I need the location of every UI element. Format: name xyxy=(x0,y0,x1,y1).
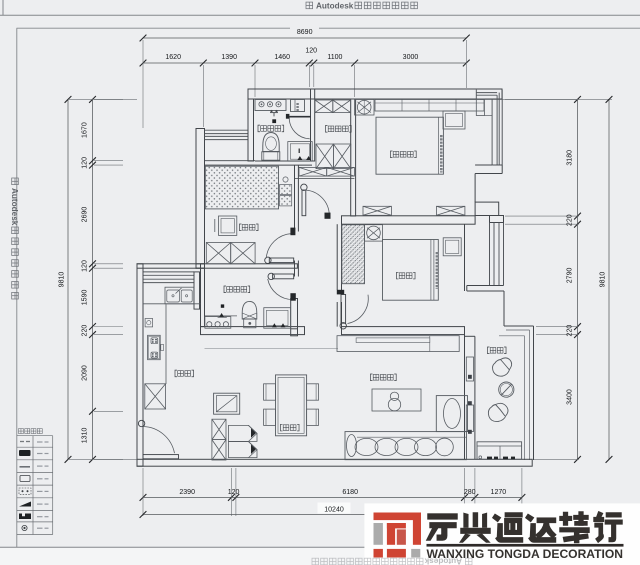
svg-text:1590: 1590 xyxy=(82,289,89,305)
svg-text:120: 120 xyxy=(305,48,317,55)
svg-text:6180: 6180 xyxy=(342,489,358,496)
svg-text:1270: 1270 xyxy=(491,489,507,496)
svg-text:8690: 8690 xyxy=(297,29,313,36)
svg-text:Autodesk: Autodesk xyxy=(424,556,462,565)
svg-text:120: 120 xyxy=(82,260,89,272)
svg-text:2790: 2790 xyxy=(567,267,574,283)
svg-text:1670: 1670 xyxy=(82,122,89,138)
svg-text:220: 220 xyxy=(567,325,574,337)
svg-text:10240: 10240 xyxy=(324,506,344,513)
svg-text:2090: 2090 xyxy=(82,365,89,381)
svg-text:2390: 2390 xyxy=(179,489,195,496)
svg-text:Autodesk: Autodesk xyxy=(10,188,19,226)
svg-text:120: 120 xyxy=(82,157,89,169)
svg-text:3180: 3180 xyxy=(567,150,574,166)
svg-text:9810: 9810 xyxy=(600,272,607,288)
svg-text:1460: 1460 xyxy=(274,54,290,61)
svg-text:280: 280 xyxy=(464,489,476,496)
svg-text:1100: 1100 xyxy=(327,54,342,61)
svg-text:1310: 1310 xyxy=(82,427,89,443)
svg-text:120: 120 xyxy=(228,489,240,496)
svg-text:2690: 2690 xyxy=(82,207,89,223)
svg-text:1390: 1390 xyxy=(221,54,237,61)
svg-text:220: 220 xyxy=(82,325,89,337)
svg-text:Autodesk: Autodesk xyxy=(316,2,354,11)
svg-text:9810: 9810 xyxy=(59,272,66,288)
svg-text:220: 220 xyxy=(567,214,574,226)
svg-text:3000: 3000 xyxy=(403,54,419,61)
svg-text:3400: 3400 xyxy=(567,389,574,405)
svg-text:1620: 1620 xyxy=(165,54,181,61)
